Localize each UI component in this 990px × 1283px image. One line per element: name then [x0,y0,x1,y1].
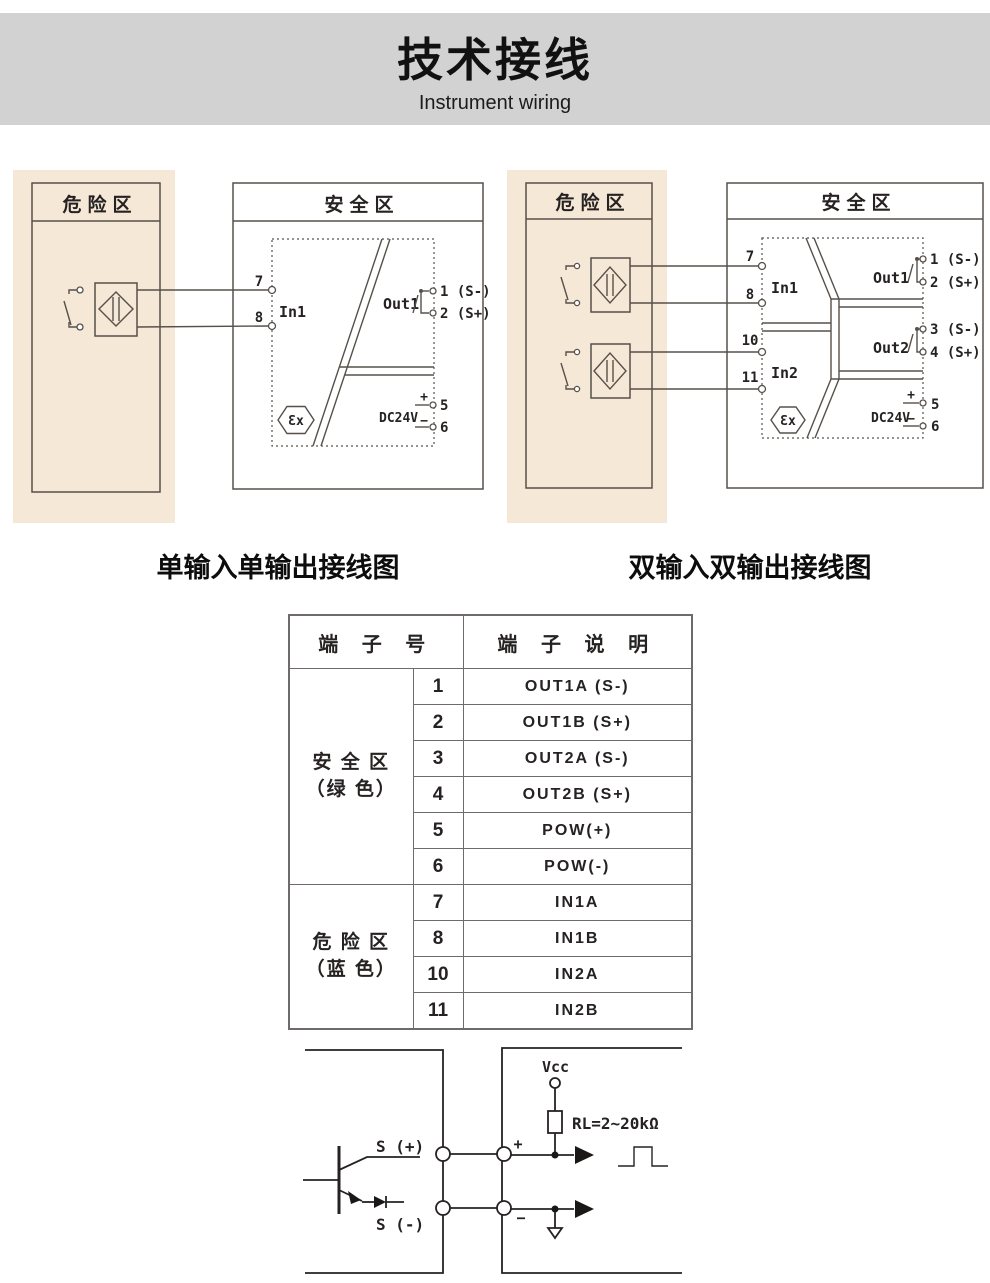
terminal-7-label: 7 [255,274,263,290]
zone-color: （蓝 色） [306,959,397,980]
out1-contact: Out1 1 (S-) 2 (S+) [873,252,981,291]
terminal-7 [759,263,766,270]
out1a-label: 1 (S-) [440,284,491,300]
table-header-row: 端 子 号 端 子 说 明 [289,615,692,669]
terminal-number-cell: 1 [413,669,463,705]
out1b-label: 2 (S+) [440,306,491,322]
s-plus-label: S (+) [376,1137,424,1156]
minus-mark: − [516,1209,525,1227]
junction-dot [552,1152,559,1159]
dual-io-diagram: 危险区 [507,170,983,523]
load-label: RL=2~20kΩ [572,1114,659,1133]
terminal-desc-cell: IN1B [463,921,692,957]
terminal-no-header: 端 子 号 [289,615,463,669]
signal-arrow-icon [575,1146,594,1164]
isolation-barrier [762,238,923,438]
terminal-number-cell: 7 [413,885,463,921]
pulse-waveform-icon [618,1147,668,1166]
out1b-label: 2 (S+) [930,275,981,291]
hazard-zone-highlight [507,170,667,523]
terminal-5 [920,400,926,406]
terminal-desc-cell: IN2B [463,993,692,1030]
terminal-8 [759,300,766,307]
table-row: 危 险 区 （蓝 色） 7 IN1A [289,885,692,921]
terminal-circle [436,1147,450,1161]
terminal-desc-cell: POW(-) [463,849,692,885]
terminal-desc-cell: OUT2A (S-) [463,741,692,777]
ex-mark-icon: Ɛx [278,407,314,434]
terminal-6 [430,424,436,430]
minus-mark: − [907,412,915,427]
zone-name: 安 全 区 [312,752,390,773]
safe-zone-title: 安全区 [821,191,896,214]
resistor-icon [548,1111,562,1133]
terminal-circle [497,1201,511,1215]
out2-contact: Out2 3 (S-) 4 (S+) [873,322,981,361]
ex-mark-icon: Ɛx [771,407,805,433]
diode-icon [374,1196,386,1208]
out2b-label: 4 (S+) [930,345,981,361]
terminal-8-label: 8 [255,310,263,326]
vcc-label: Vcc [542,1058,569,1076]
terminal-number-cell: 5 [413,813,463,849]
ground-icon [548,1228,562,1238]
transistor-icon [303,1146,420,1214]
zone-color: （绿 色） [306,779,397,800]
terminal-desc-cell: OUT1B (S+) [463,705,692,741]
terminal-desc-cell: IN2A [463,957,692,993]
terminal-5 [430,402,436,408]
plus-mark: + [513,1135,522,1153]
terminal-number-cell: 3 [413,741,463,777]
svg-text:Ɛx: Ɛx [288,414,304,429]
zone-name: 危 险 区 [312,932,390,953]
system-side-box [502,1048,682,1273]
field-side-box [305,1050,443,1273]
terminal-6-label: 6 [440,420,448,436]
in1-label: In1 [279,303,306,321]
wire-in1b [137,326,269,327]
hazard-zone-title: 危险区 [62,193,137,216]
plus-mark: + [907,388,915,403]
terminal-number-cell: 11 [413,993,463,1030]
terminal-desc-cell: OUT1A (S-) [463,669,692,705]
terminal-8 [269,323,276,330]
zone-group-cell: 危 险 区 （蓝 色） [289,885,413,1030]
caption-single-io: 单输入单输出接线图 [128,546,428,585]
safe-zone-title: 安全区 [324,193,399,216]
output-circuit: S (+) S (-) Vcc RL=2~20kΩ + − [303,1048,682,1273]
terminal-circle [497,1147,511,1161]
terminal-10 [759,349,766,356]
plus-mark: + [420,390,428,405]
hazard-zone-title: 危险区 [555,191,630,214]
terminal-circle [436,1201,450,1215]
table-row: 安 全 区 （绿 色） 1 OUT1A (S-) [289,669,692,705]
terminal-number-cell: 4 [413,777,463,813]
pullup-resistor: Vcc RL=2~20kΩ [542,1058,659,1155]
terminal-desc-cell: IN1A [463,885,692,921]
out2a-label: 3 (S-) [930,322,981,338]
terminal-number-cell: 6 [413,849,463,885]
out2-label: Out2 [873,339,909,357]
dc24v-label: DC24V [379,411,418,426]
hazard-zone-highlight [13,170,175,523]
terminal-8-label: 8 [746,287,754,303]
in2-label: In2 [771,364,798,382]
terminal-7-label: 7 [746,249,754,265]
zone-group-cell: 安 全 区 （绿 色） [289,669,413,885]
caption-dual-io: 双输入双输出接线图 [600,546,900,585]
terminal-6-label: 6 [931,419,939,435]
terminal-6 [920,423,926,429]
terminal-11-label: 11 [742,370,759,386]
signal-arrow-icon [575,1200,594,1218]
out1a-label: 1 (S-) [930,252,981,268]
isolator-module-outline [762,238,923,438]
power-terminals: DC24V + 5 − 6 [871,388,939,435]
terminal-11 [759,386,766,393]
single-io-diagram: 危险区 安全区 [13,170,491,523]
junction-dot [552,1206,559,1213]
terminal-desc-header: 端 子 说 明 [463,615,692,669]
terminal-7 [269,287,276,294]
terminal-number-cell: 8 [413,921,463,957]
power-terminals: DC24V + 5 − 6 [379,390,448,436]
s-minus-label: S (-) [376,1215,424,1234]
terminal-10-label: 10 [742,333,759,349]
terminal-5-label: 5 [440,398,448,414]
terminal-table: 端 子 号 端 子 说 明 安 全 区 （绿 色） 1 OUT1A (S-) 2… [288,614,693,1030]
in1-label: In1 [771,279,798,297]
dc24v-label: DC24V [871,411,910,426]
out1-contact: Out1 1 (S-) 2 (S+) [383,284,491,322]
terminal-desc-cell: POW(+) [463,813,692,849]
svg-text:Ɛx: Ɛx [780,414,796,429]
terminal-number-cell: 10 [413,957,463,993]
terminal-number-cell: 2 [413,705,463,741]
terminal-5-label: 5 [931,397,939,413]
out1-label: Out1 [873,269,909,287]
terminal-desc-cell: OUT2B (S+) [463,777,692,813]
